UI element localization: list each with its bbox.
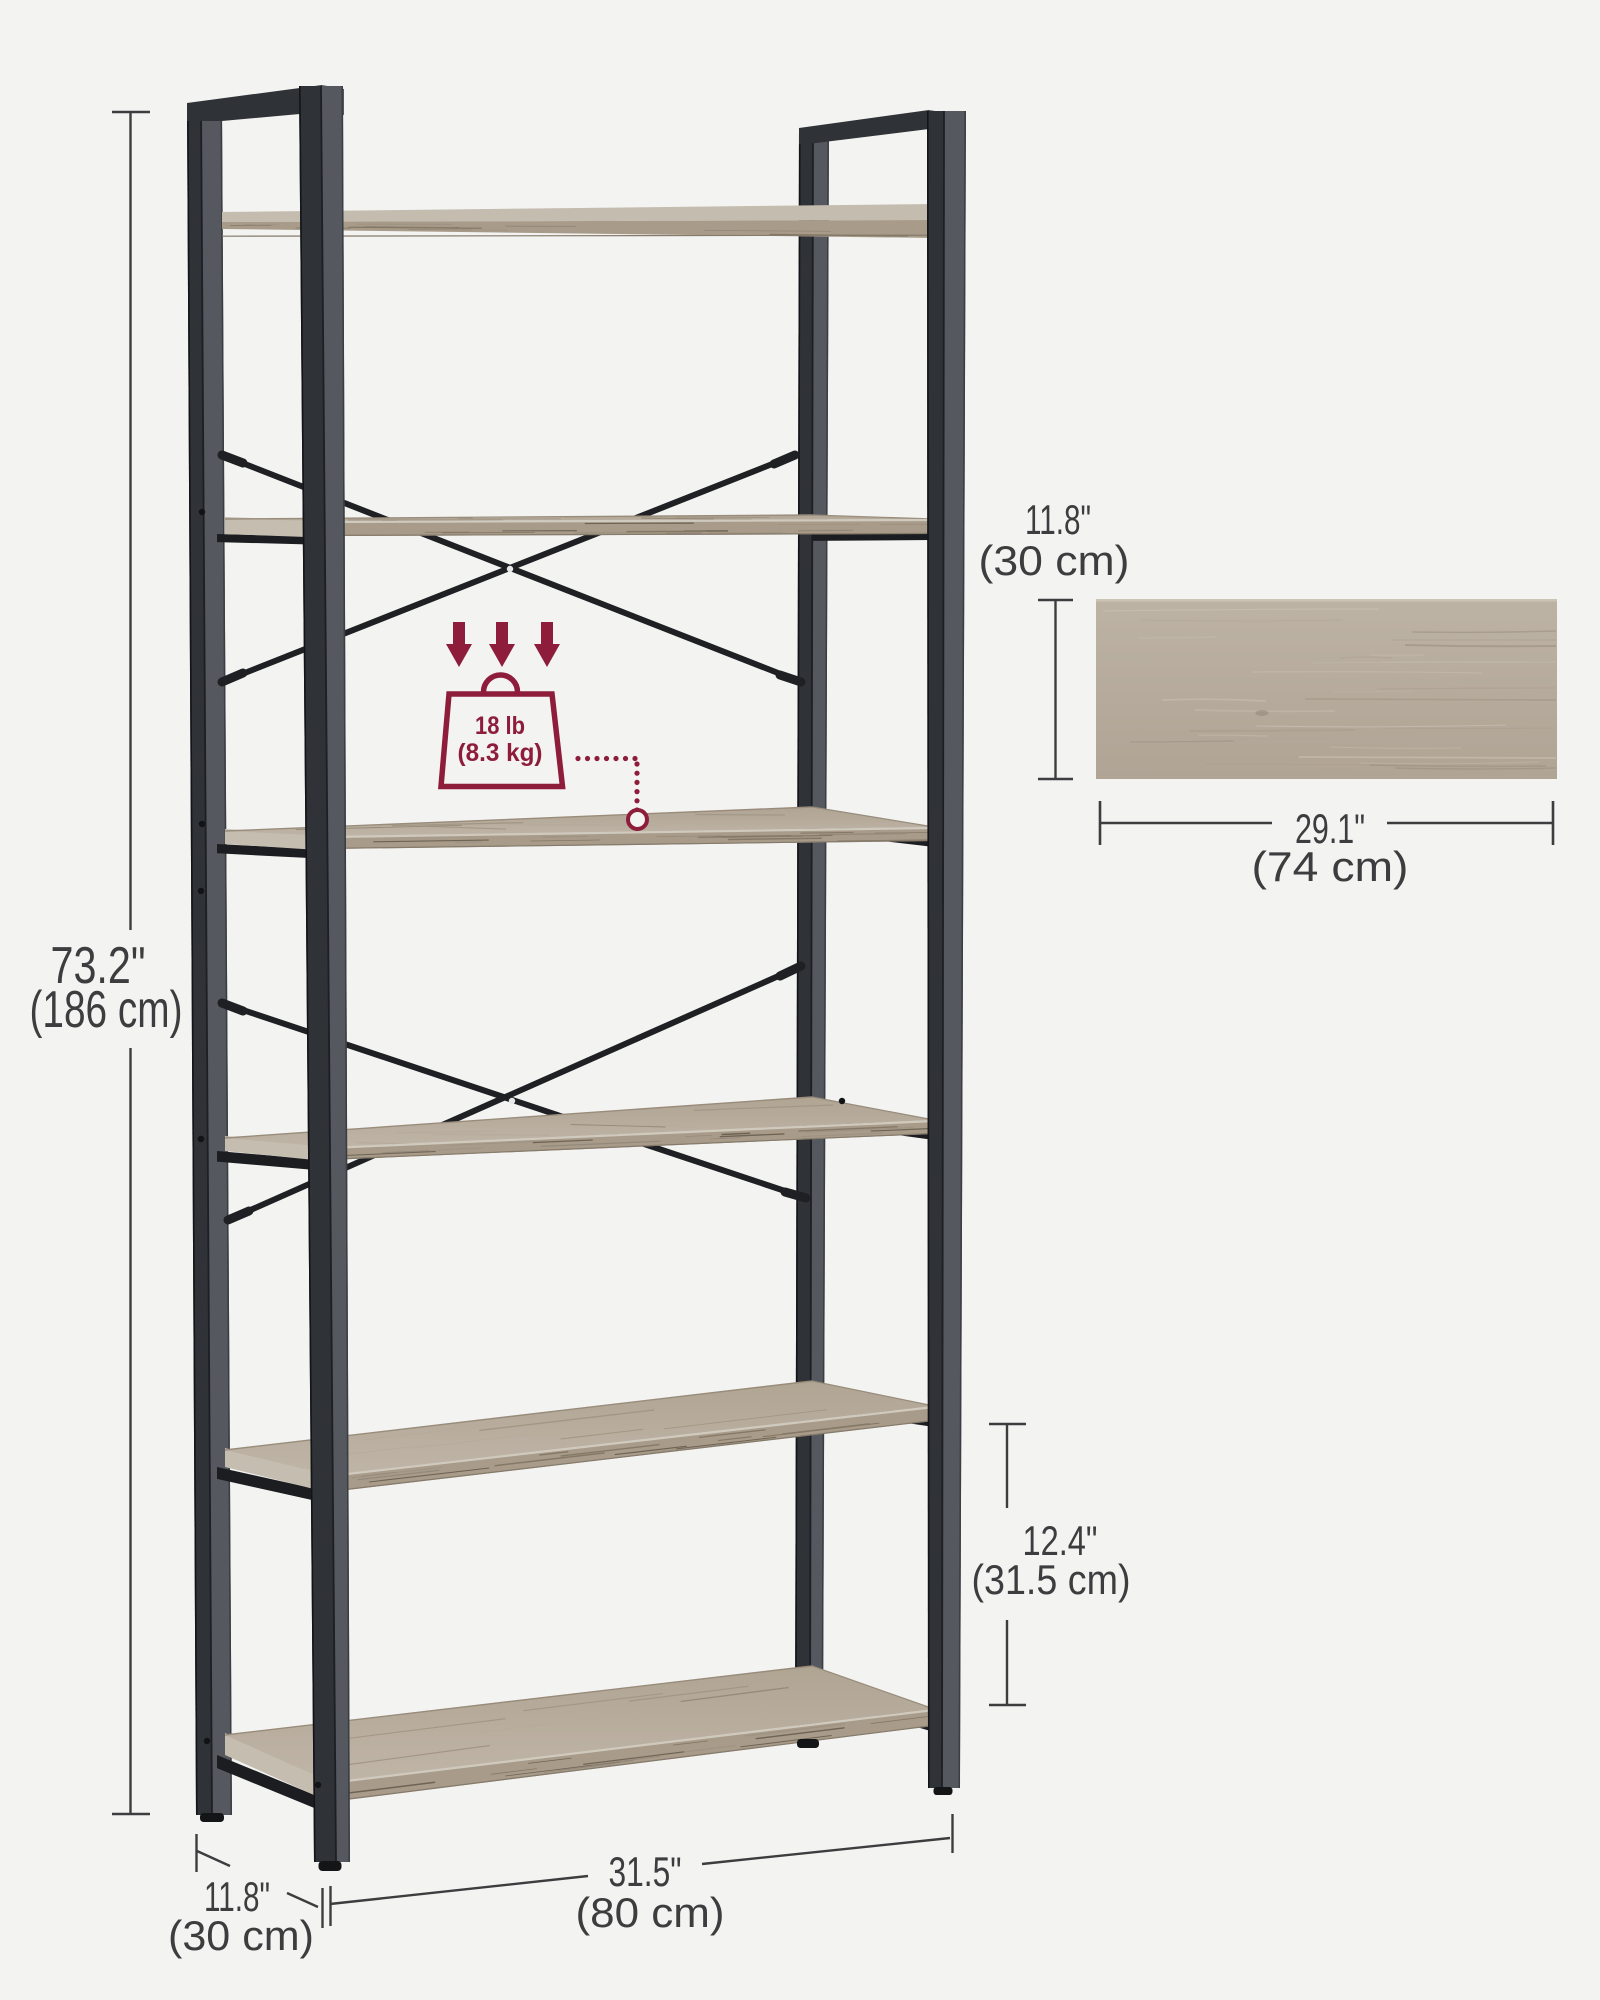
svg-text:(31.5 cm): (31.5 cm) [972,1556,1131,1603]
svg-text:31.5": 31.5" [609,1848,682,1895]
svg-text:(74 cm): (74 cm) [1252,843,1409,890]
svg-text:(80 cm): (80 cm) [576,1889,725,1936]
svg-text:11.8": 11.8" [1025,496,1091,543]
svg-text:18 lb: 18 lb [475,712,525,740]
svg-text:(30 cm): (30 cm) [168,1912,314,1959]
svg-text:(8.3 kg): (8.3 kg) [458,739,543,767]
svg-text:(186 cm): (186 cm) [30,981,183,1039]
svg-text:(30 cm): (30 cm) [979,537,1130,584]
